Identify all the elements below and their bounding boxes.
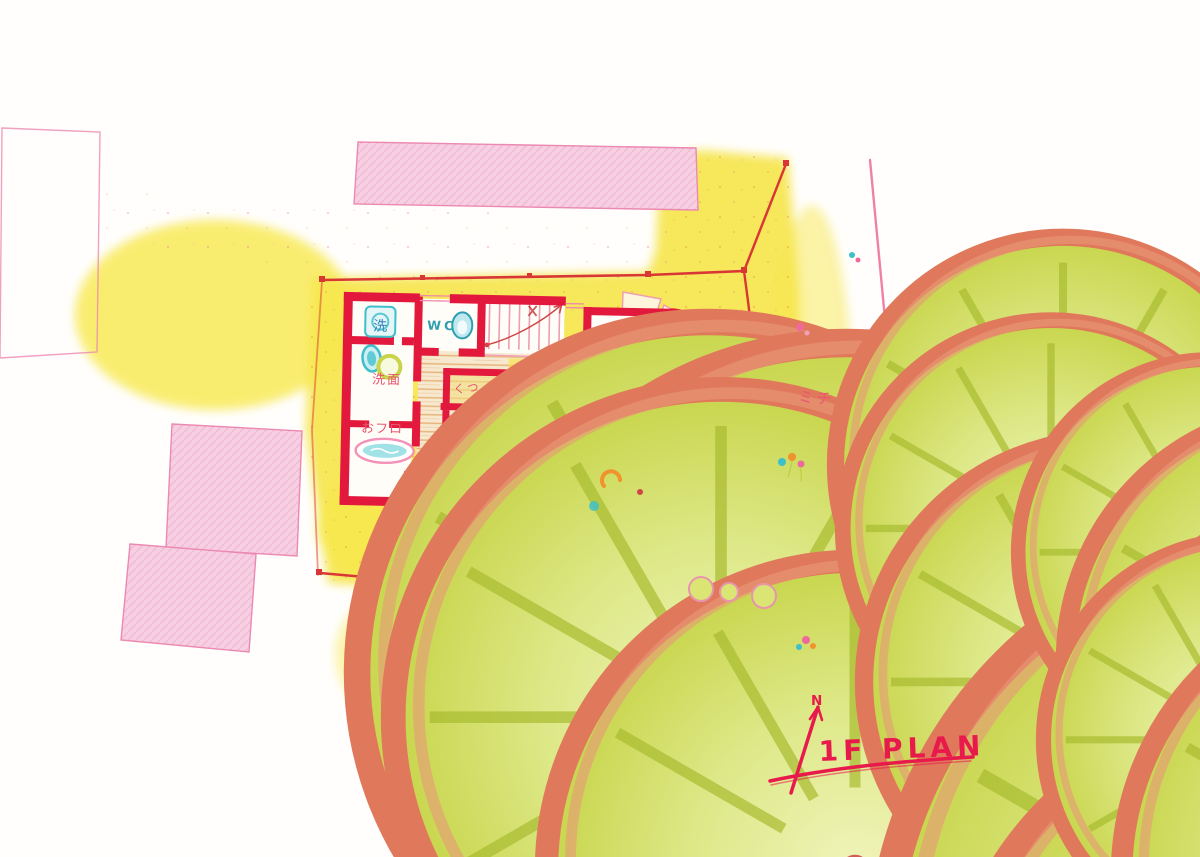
neighbor-building (354, 142, 698, 210)
north-label: N (811, 693, 822, 709)
laundry-label: 洗 (373, 319, 387, 335)
sketch-site-plan: 洗 WC 洗面 おフロ くつ クローク 玄関 仕事室 寝 室 クローゼット 収 … (0, 0, 1200, 857)
wc-label: WC (427, 318, 456, 334)
washroom-label: 洗面 (372, 373, 402, 389)
road-label: ミチ (798, 388, 835, 408)
floor-plan-canvas: 洗 WC 洗面 おフロ くつ クローク 玄関 仕事室 寝 室 クローゼット 収 … (0, 0, 1200, 857)
neighbor-building (166, 424, 302, 556)
neighbor-building (121, 544, 256, 652)
bathtub-icon (355, 438, 413, 463)
flower-cluster (849, 252, 861, 263)
bath-label: おフロ (361, 421, 403, 437)
